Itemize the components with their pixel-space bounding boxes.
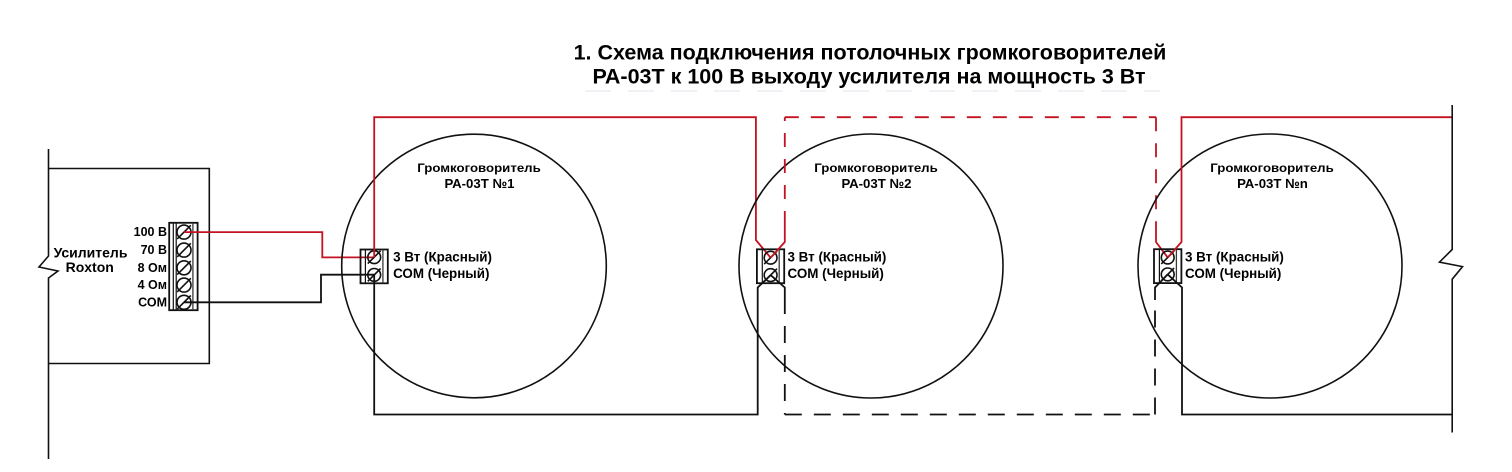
svg-text:8 Ом: 8 Ом	[138, 261, 167, 275]
svg-text:70 В: 70 В	[141, 243, 167, 257]
svg-text:СОМ (Черный): СОМ (Черный)	[788, 266, 884, 281]
svg-text:Громкоговоритель: Громкоговоритель	[417, 161, 541, 175]
svg-text:3 Вт (Красный): 3 Вт (Красный)	[1185, 250, 1284, 265]
svg-text:3 Вт (Красный): 3 Вт (Красный)	[393, 250, 492, 265]
svg-text:РА-03Т №2: РА-03Т №2	[842, 176, 912, 191]
svg-text:Громкоговоритель: Громкоговоритель	[1210, 161, 1334, 175]
svg-text:РА-03Т к 100 В выходу усилител: РА-03Т к 100 В выходу усилителя на мощно…	[592, 65, 1145, 89]
svg-text:3 Вт (Красный): 3 Вт (Красный)	[788, 250, 887, 265]
svg-text:Roxton: Roxton	[66, 259, 114, 275]
svg-text:СОМ (Черный): СОМ (Черный)	[1185, 266, 1281, 281]
svg-text:СОМ (Черный): СОМ (Черный)	[393, 266, 489, 281]
svg-text:4 Ом: 4 Ом	[138, 278, 167, 292]
svg-text:100 В: 100 В	[134, 225, 167, 239]
svg-text:РА-03Т №n: РА-03Т №n	[1237, 176, 1308, 191]
svg-text:Громкоговоритель: Громкоговоритель	[814, 161, 938, 175]
svg-text:1. Схема подключения потолочны: 1. Схема подключения потолочных громкого…	[574, 41, 1167, 65]
svg-text:РА-03Т №1: РА-03Т №1	[445, 176, 515, 191]
svg-text:СОМ: СОМ	[138, 296, 167, 310]
